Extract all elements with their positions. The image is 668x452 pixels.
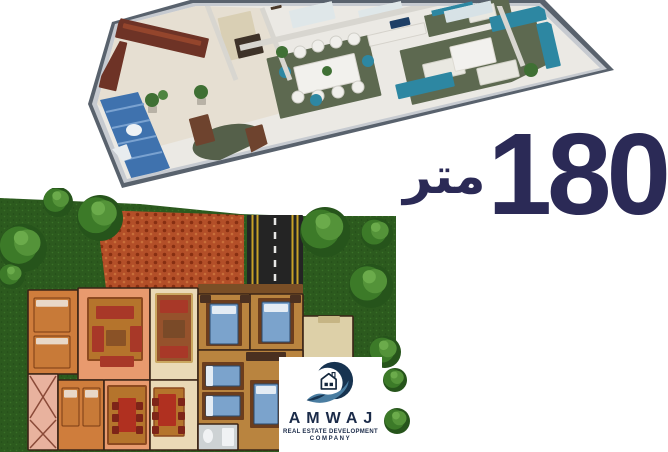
tree (384, 408, 410, 434)
pillow (64, 390, 77, 398)
sink (222, 428, 234, 446)
stairwell (28, 374, 58, 450)
sofa (92, 326, 104, 352)
plant (194, 85, 208, 99)
tree-foliage (390, 371, 397, 378)
chair (136, 426, 143, 434)
chair (136, 402, 143, 410)
tree (43, 188, 73, 217)
tree-foliage (91, 201, 105, 215)
tree (77, 195, 123, 241)
dining-chair (352, 81, 364, 93)
company-tagline: REAL ESTATE DEVELOPMENT (283, 429, 378, 436)
dining-chair (348, 33, 360, 45)
tree-foliage (316, 214, 331, 229)
pillow (264, 304, 288, 312)
company-tagline-2: COMPANY (310, 436, 351, 443)
pillow (36, 338, 68, 344)
tree (349, 264, 393, 308)
chair (178, 412, 185, 420)
pillow (212, 306, 236, 314)
chair (152, 426, 159, 434)
nightstand (200, 295, 211, 303)
area-value: 180 (487, 128, 666, 221)
area-unit-arabic: متر (403, 151, 485, 201)
chair (178, 398, 185, 406)
table (163, 320, 185, 338)
dining-chair (332, 86, 344, 98)
sofa (160, 346, 188, 358)
chair (152, 398, 159, 406)
chair (112, 402, 119, 410)
dining-chair-teal (362, 55, 374, 67)
tree (383, 368, 407, 392)
chair (152, 412, 159, 420)
nightstand (240, 295, 251, 303)
toilet (126, 124, 142, 136)
pillow (206, 366, 213, 386)
plant (158, 90, 168, 100)
toilet (203, 429, 213, 443)
dining-chair (292, 91, 304, 103)
planter-pot (148, 106, 157, 113)
sofa (100, 356, 134, 367)
pillow (206, 396, 213, 416)
tree-foliage (371, 222, 381, 232)
dining-table-red (118, 398, 136, 432)
coffee-table (106, 330, 126, 346)
real-estate-listing-graphic: متر 180 AMWAJ REAL ESTATE DEVELOPMENT CO… (0, 0, 668, 452)
chair (112, 414, 119, 422)
tree-foliage (14, 231, 28, 245)
dining-chair (312, 40, 324, 52)
dining-table-red (158, 394, 176, 426)
entry-step (318, 316, 340, 323)
pillow (85, 390, 98, 398)
dining-chair (330, 36, 342, 48)
area-size-label: متر 180 (403, 128, 666, 221)
sofa (160, 300, 188, 313)
sofa (96, 306, 134, 319)
amwaj-wave-house-icon (298, 359, 364, 411)
tree-foliage (52, 191, 61, 200)
planter-pot (197, 98, 206, 105)
tree-foliage (7, 267, 15, 275)
dining-chair (294, 46, 306, 58)
sofa (130, 326, 142, 352)
pillow (256, 386, 276, 394)
chair (136, 414, 143, 422)
dining-chair-teal (310, 94, 322, 106)
tree (0, 263, 25, 289)
plant (524, 63, 538, 77)
company-logo: AMWAJ REAL ESTATE DEVELOPMENT COMPANY (279, 357, 382, 452)
tree-foliage (363, 270, 376, 283)
company-name: AMWAJ (283, 411, 379, 428)
tree-foliage (379, 340, 389, 350)
plant (276, 46, 288, 58)
nightstand (290, 295, 301, 303)
pillow (36, 300, 68, 307)
plant (145, 93, 159, 107)
centerpiece-plant (322, 66, 332, 76)
chair (112, 426, 119, 434)
tree-foliage (392, 412, 400, 420)
chair (178, 426, 185, 434)
deck-strip (198, 284, 303, 294)
tree (361, 218, 393, 250)
tree (300, 207, 350, 257)
